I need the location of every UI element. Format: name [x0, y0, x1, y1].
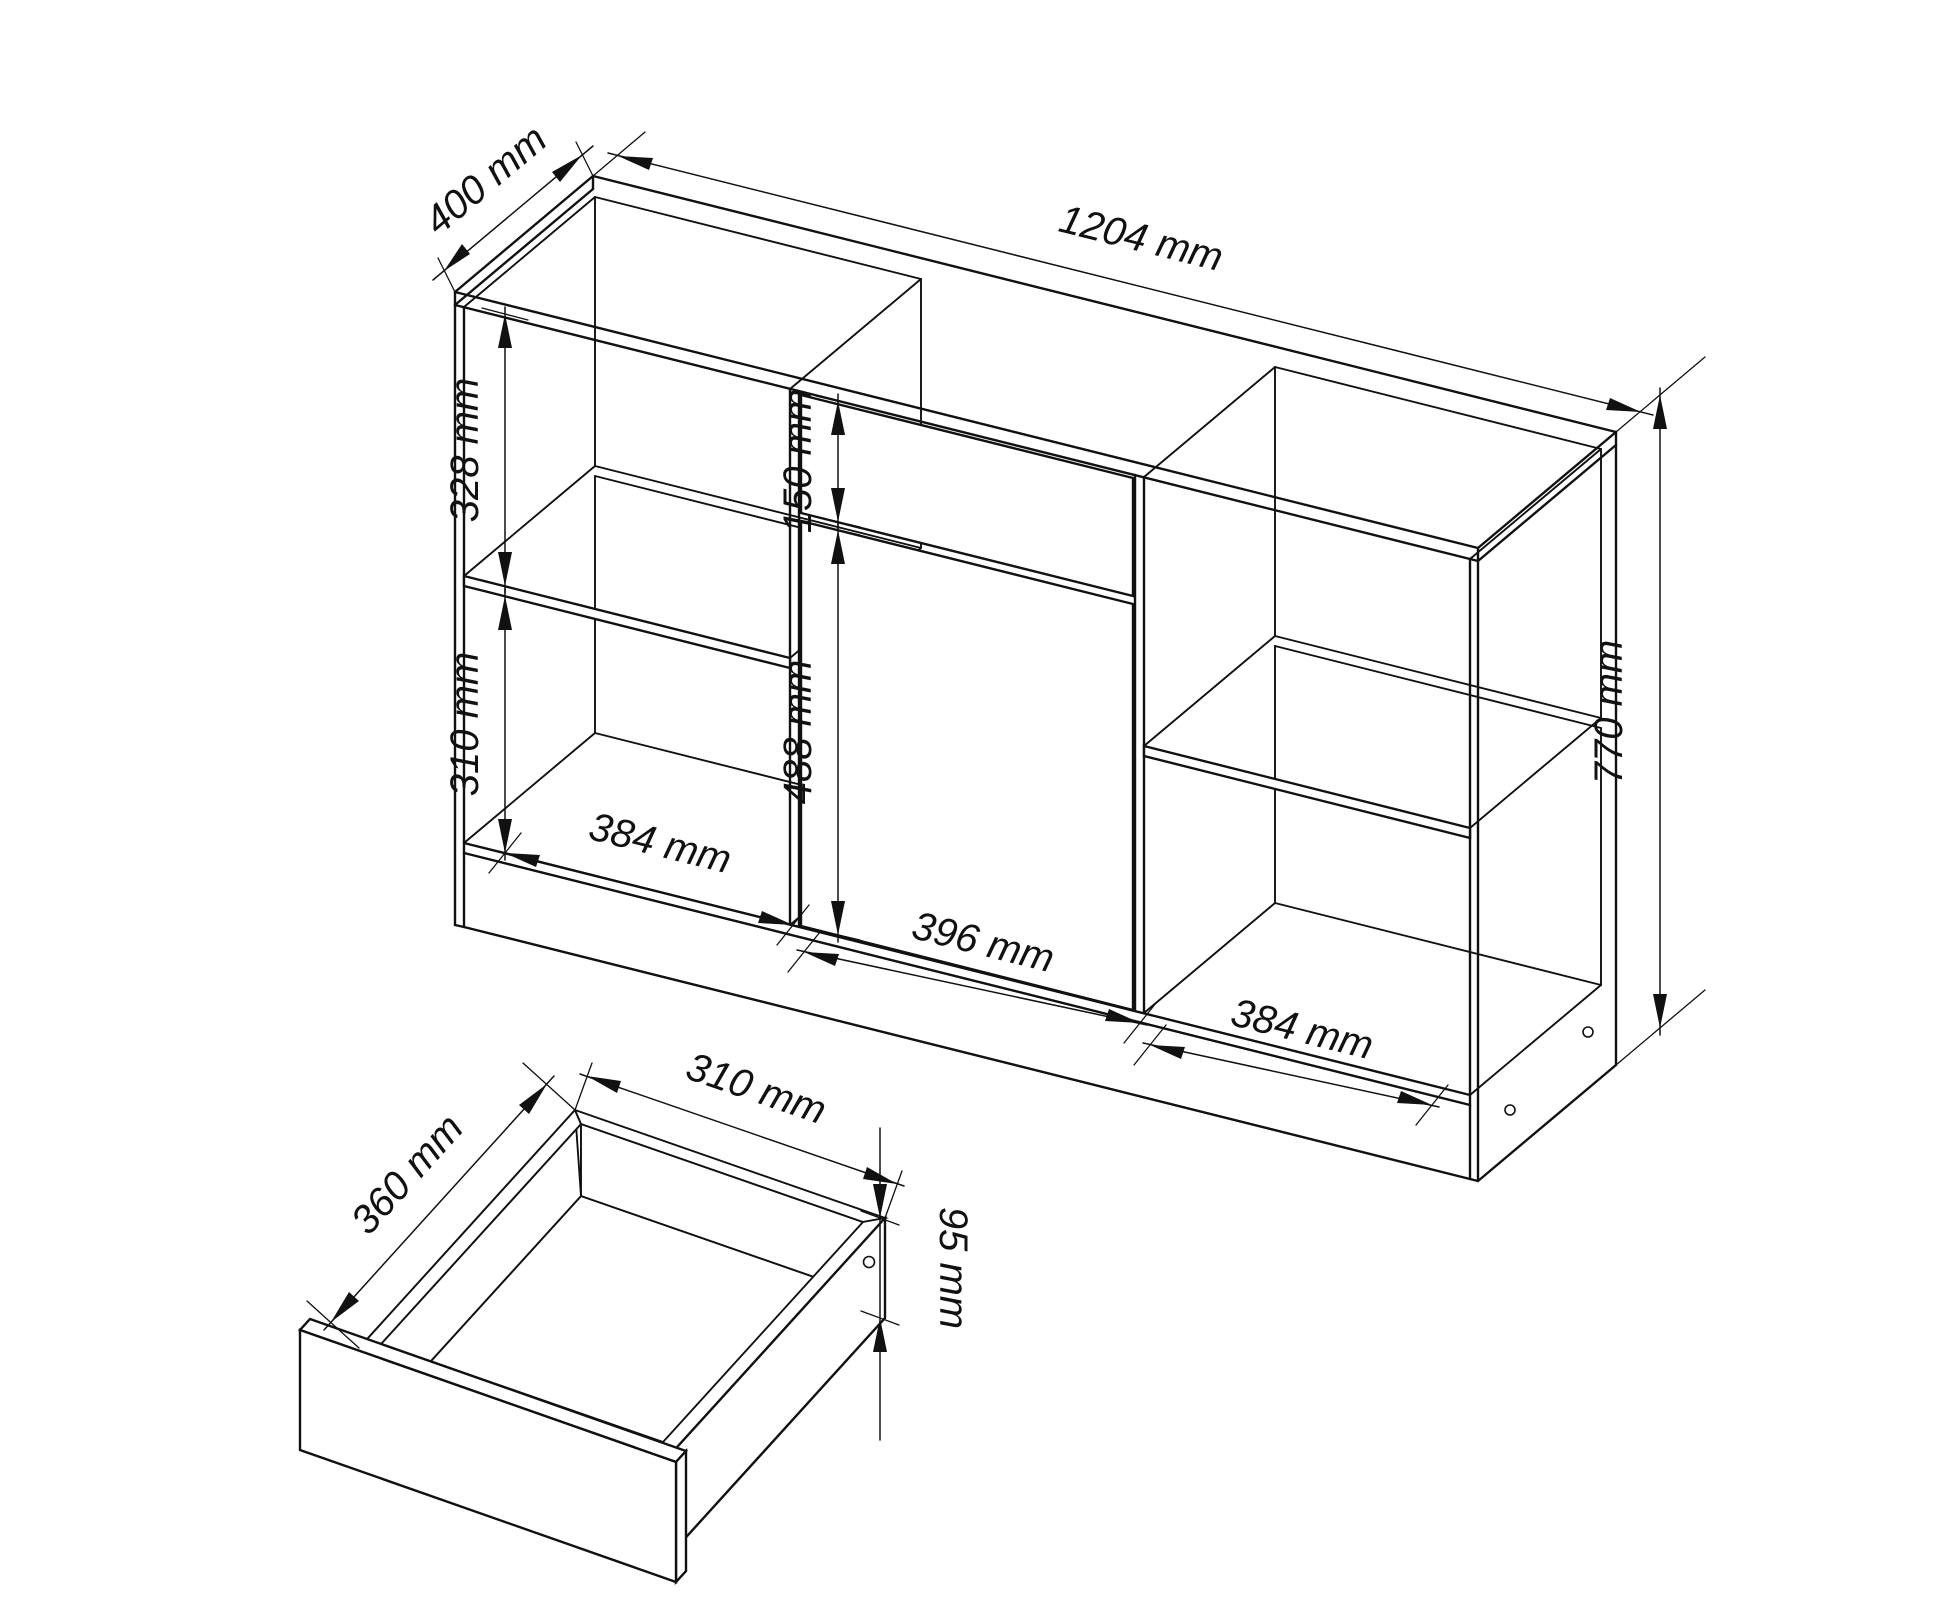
cabinet-divider-right — [1135, 475, 1144, 1013]
dim-label-drawer-side-height: 95 mm — [931, 1207, 975, 1329]
dim-label-door-height: 488 mm — [776, 660, 820, 805]
dim-label-drawer-front-height: 150 mm — [776, 389, 820, 534]
dim-label-left-upper-height: 328 mm — [443, 378, 487, 523]
dim-label-cabinet-width: 1204 mm — [1055, 197, 1227, 280]
drawing-page: 400 mm 1204 mm 328 mm 310 mm 150 mm — [0, 0, 1946, 1597]
cabinet-right-top-compartment — [1144, 367, 1601, 828]
dimension-cabinet-height: 770 mm — [1587, 388, 1705, 1065]
cam-hole — [1583, 1027, 1593, 1037]
cabinet-right-side-panel — [1470, 445, 1616, 1181]
dim-label-left-lower-height: 310 mm — [443, 652, 487, 797]
drawer-front-end-face — [676, 1451, 686, 1582]
drawing-canvas: 400 mm 1204 mm 328 mm 310 mm 150 mm — [0, 0, 1946, 1597]
dimension-cabinet-width: 1204 mm — [593, 132, 1705, 432]
dim-label-drawer-depth: 360 mm — [343, 1106, 472, 1243]
dim-label-drawer-width: 310 mm — [681, 1044, 832, 1133]
cam-hole — [1505, 1105, 1515, 1115]
dim-label-left-compartment-width: 384 mm — [585, 805, 736, 883]
dimension-cabinet-depth: 400 mm — [416, 117, 593, 292]
dim-label-cabinet-height: 770 mm — [1587, 640, 1631, 785]
